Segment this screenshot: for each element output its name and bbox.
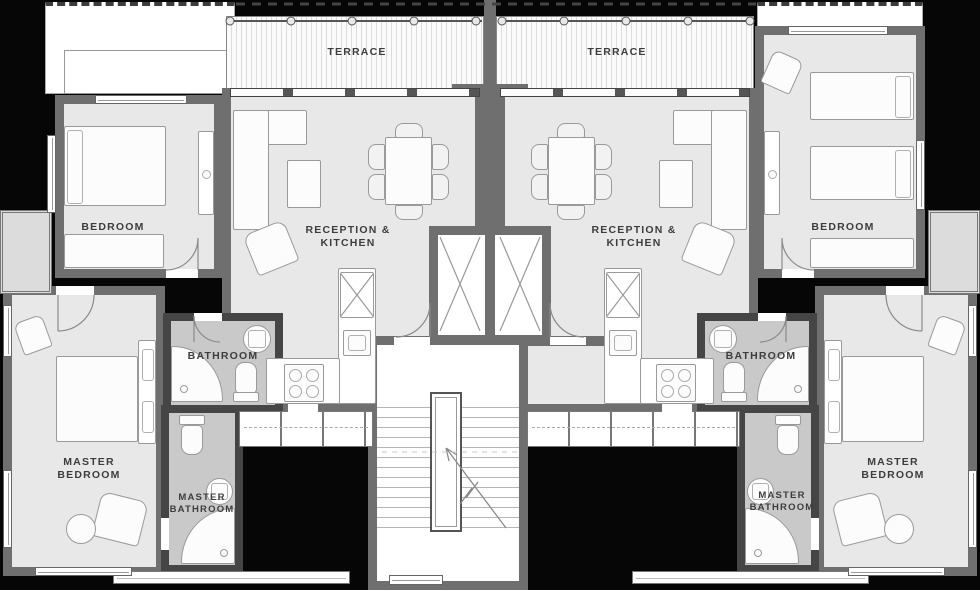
sofa-chaise: [711, 110, 747, 230]
canopy-left-planter: [64, 50, 230, 94]
dining-chair: [432, 144, 449, 170]
label-bathroom-left: BATHROOM: [188, 350, 259, 363]
duct-shaft-divider: [485, 235, 495, 335]
window-bedroom-right: [788, 26, 888, 35]
window-master-left: [35, 567, 132, 576]
burner: [661, 385, 674, 398]
dining-chair: [368, 174, 385, 200]
wardrobe-handle: [768, 170, 777, 179]
dining-table: [385, 137, 432, 205]
door-gap-bathroom-left: [194, 313, 222, 321]
bed: [842, 356, 924, 442]
fridge: [606, 272, 640, 318]
label-bedroom-left: BEDROOM: [81, 221, 144, 234]
shower-drain: [180, 385, 188, 393]
label-line: BATHROOM: [170, 504, 235, 516]
shower-drain: [220, 549, 228, 557]
corridor-right: [527, 411, 740, 447]
shower-drain: [794, 385, 802, 393]
dining-table: [548, 137, 595, 205]
dining-chair: [531, 174, 548, 200]
toilet-tank: [179, 415, 205, 425]
bathroom-sink: [709, 325, 737, 353]
window-left-wall-b: [3, 470, 12, 548]
label-bedroom-right: BEDROOM: [811, 221, 874, 234]
wardrobe: [198, 131, 214, 215]
door-gap-entry-left: [394, 337, 430, 345]
burner: [661, 369, 674, 382]
corridor-right-dash: [532, 427, 735, 428]
window-master-right: [848, 567, 945, 576]
label-terrace-left: TERRACE: [327, 46, 386, 59]
dining-chair: [557, 123, 585, 138]
side-table: [884, 514, 914, 544]
pillow: [828, 401, 840, 433]
door-gap-kitchen-right: [662, 404, 692, 413]
label-master-bathroom-right: MASTER BATHROOM: [750, 490, 815, 514]
stair-newel: [430, 392, 462, 532]
wardrobe-handle: [202, 170, 211, 179]
canopy-left: [45, 2, 235, 94]
stove: [284, 364, 324, 402]
door-gap-master-right: [886, 286, 924, 295]
stair-window: [389, 575, 443, 585]
burner: [678, 385, 691, 398]
shower-drain: [754, 549, 762, 557]
stove: [656, 364, 696, 402]
burner: [306, 385, 319, 398]
sink-basin: [614, 335, 632, 351]
kitchen-sink: [609, 330, 637, 356]
sill-bottom-right: [632, 571, 869, 584]
wardrobe: [764, 131, 780, 215]
dining-chair: [531, 144, 548, 170]
label-line: KITCHEN: [592, 237, 677, 250]
door-gap-bedroom-right: [782, 269, 814, 278]
toilet: [235, 362, 257, 394]
label-reception-left: RECEPTION & KITCHEN: [306, 224, 391, 250]
door-gap-master-bath-right: [811, 518, 819, 550]
stair-newel-inner: [435, 397, 457, 527]
floor-plan: TERRACE TERRACE BEDROOM BEDROOM RECEPTIO…: [0, 0, 980, 590]
pillow: [142, 401, 154, 433]
bed-single: [810, 146, 914, 200]
dining-chair: [395, 123, 423, 138]
pillow: [142, 349, 154, 381]
sink-basin: [714, 330, 732, 348]
window-bedroom-right-side: [916, 140, 925, 210]
window-right-wall-a: [968, 305, 977, 357]
terrace-right-window-wall: [500, 88, 750, 97]
label-line: BATHROOM: [750, 502, 815, 514]
sink-basin: [248, 330, 266, 348]
door-gap-bedroom-left: [166, 269, 198, 278]
label-bathroom-right: BATHROOM: [726, 350, 797, 363]
label-line: KITCHEN: [306, 237, 391, 250]
window-right-wall-b: [968, 470, 977, 548]
corridor-left-mullions: [240, 412, 372, 446]
canopy-right: [757, 2, 923, 28]
burner: [289, 385, 302, 398]
burner: [678, 369, 691, 382]
burner: [306, 369, 319, 382]
label-line: MASTER: [750, 490, 815, 502]
pillow: [67, 130, 83, 204]
window-bedroom-left-side: [47, 135, 56, 213]
bathroom-sink: [243, 325, 271, 353]
balcony-left: [0, 210, 52, 294]
label-reception-right: RECEPTION & KITCHEN: [592, 224, 677, 250]
coffee-table: [287, 160, 321, 208]
toilet-tank: [775, 415, 801, 425]
coffee-table: [659, 160, 693, 208]
door-gap-master-left: [56, 286, 94, 295]
label-terrace-right: TERRACE: [587, 46, 646, 59]
label-line: RECEPTION &: [306, 224, 391, 237]
pillow: [895, 76, 911, 118]
label-line: BEDROOM: [57, 469, 120, 482]
dining-chair: [595, 144, 612, 170]
kitchen-sink: [343, 330, 371, 356]
label-line: BEDROOM: [861, 469, 924, 482]
label-line: MASTER: [57, 456, 120, 469]
door-gap-master-bath-left: [161, 518, 169, 550]
side-table: [66, 514, 96, 544]
terrace-left-window-wall: [230, 88, 480, 97]
dining-chair: [432, 174, 449, 200]
burner: [289, 369, 302, 382]
bed: [64, 126, 166, 206]
party-wall: [484, 0, 496, 232]
dining-chair: [395, 205, 423, 220]
duct-shaft-block: [429, 226, 551, 344]
pillow: [828, 349, 840, 381]
door-gap-kitchen-left: [288, 404, 318, 413]
bed-headboard: [138, 340, 156, 444]
bed-single: [810, 238, 914, 268]
bed-headboard: [824, 340, 842, 444]
dining-chair: [595, 174, 612, 200]
corridor-left-dash: [244, 427, 368, 428]
door-gap-bathroom-right: [758, 313, 786, 321]
label-line: RECEPTION &: [592, 224, 677, 237]
bed: [56, 356, 138, 442]
label-master-bedroom-left: MASTER BEDROOM: [57, 456, 120, 482]
dining-chair: [368, 144, 385, 170]
pillow: [895, 150, 911, 198]
toilet-tank: [721, 392, 747, 402]
fridge: [340, 272, 374, 318]
corridor-right-mullions: [528, 412, 739, 446]
sink-basin: [348, 335, 366, 351]
label-master-bedroom-right: MASTER BEDROOM: [861, 456, 924, 482]
sofa-chaise: [233, 110, 269, 230]
door-gap-entry-right: [550, 337, 586, 345]
toilet: [723, 362, 745, 394]
window-bedroom-left: [95, 95, 187, 104]
balcony-right: [928, 210, 980, 294]
toilet: [181, 425, 203, 455]
corridor-left: [239, 411, 373, 447]
sill-bottom-left: [113, 571, 350, 584]
window-left-wall-a: [3, 305, 12, 357]
label-master-bathroom-left: MASTER BATHROOM: [170, 492, 235, 516]
toilet: [777, 425, 799, 455]
bed-single: [64, 234, 164, 268]
bed-single: [810, 72, 914, 120]
label-line: MASTER: [170, 492, 235, 504]
toilet-tank: [233, 392, 259, 402]
label-line: MASTER: [861, 456, 924, 469]
dining-chair: [557, 205, 585, 220]
